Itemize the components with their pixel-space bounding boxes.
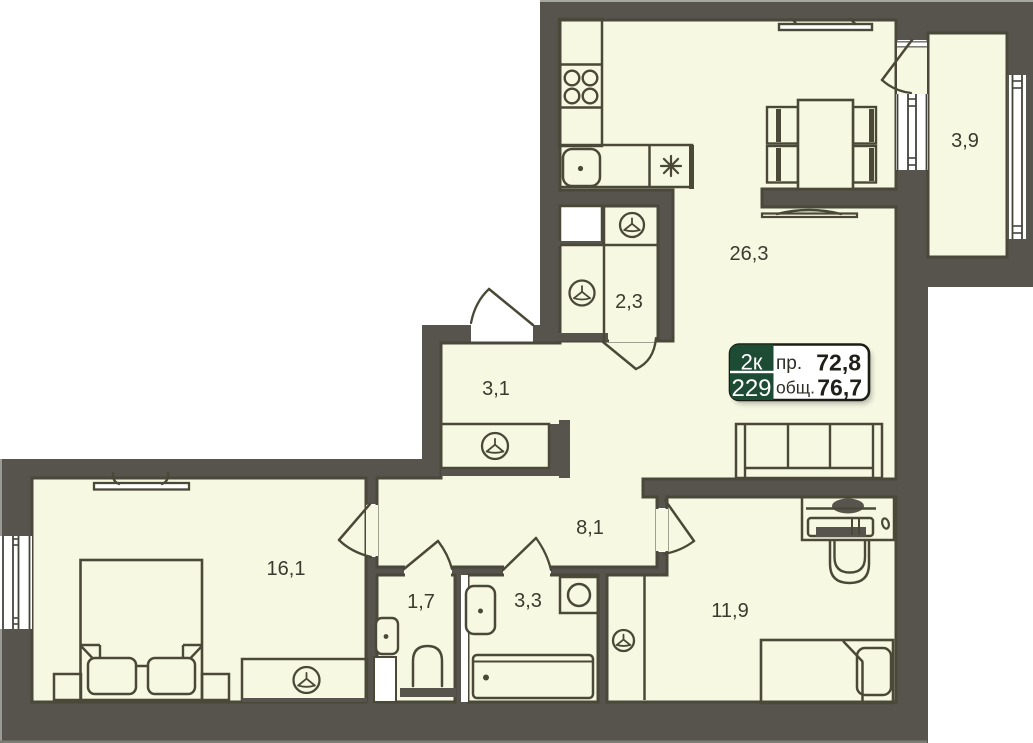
svg-text:11,9: 11,9 — [711, 600, 748, 622]
svg-text:3,9: 3,9 — [951, 130, 979, 152]
svg-text:2к: 2к — [741, 350, 763, 375]
svg-text:72,8: 72,8 — [816, 350, 861, 376]
svg-text:8,1: 8,1 — [576, 517, 604, 539]
svg-text:76,7: 76,7 — [817, 375, 862, 401]
svg-text:2,3: 2,3 — [615, 291, 643, 313]
svg-text:3,3: 3,3 — [514, 590, 542, 612]
svg-text:26,3: 26,3 — [730, 243, 769, 265]
svg-text:16,1: 16,1 — [267, 558, 306, 580]
svg-text:общ.: общ. — [776, 378, 815, 398]
svg-text:229: 229 — [731, 375, 771, 402]
svg-text:3,1: 3,1 — [482, 378, 510, 400]
svg-text:пр.: пр. — [776, 353, 802, 374]
svg-text:1,7: 1,7 — [407, 591, 435, 613]
